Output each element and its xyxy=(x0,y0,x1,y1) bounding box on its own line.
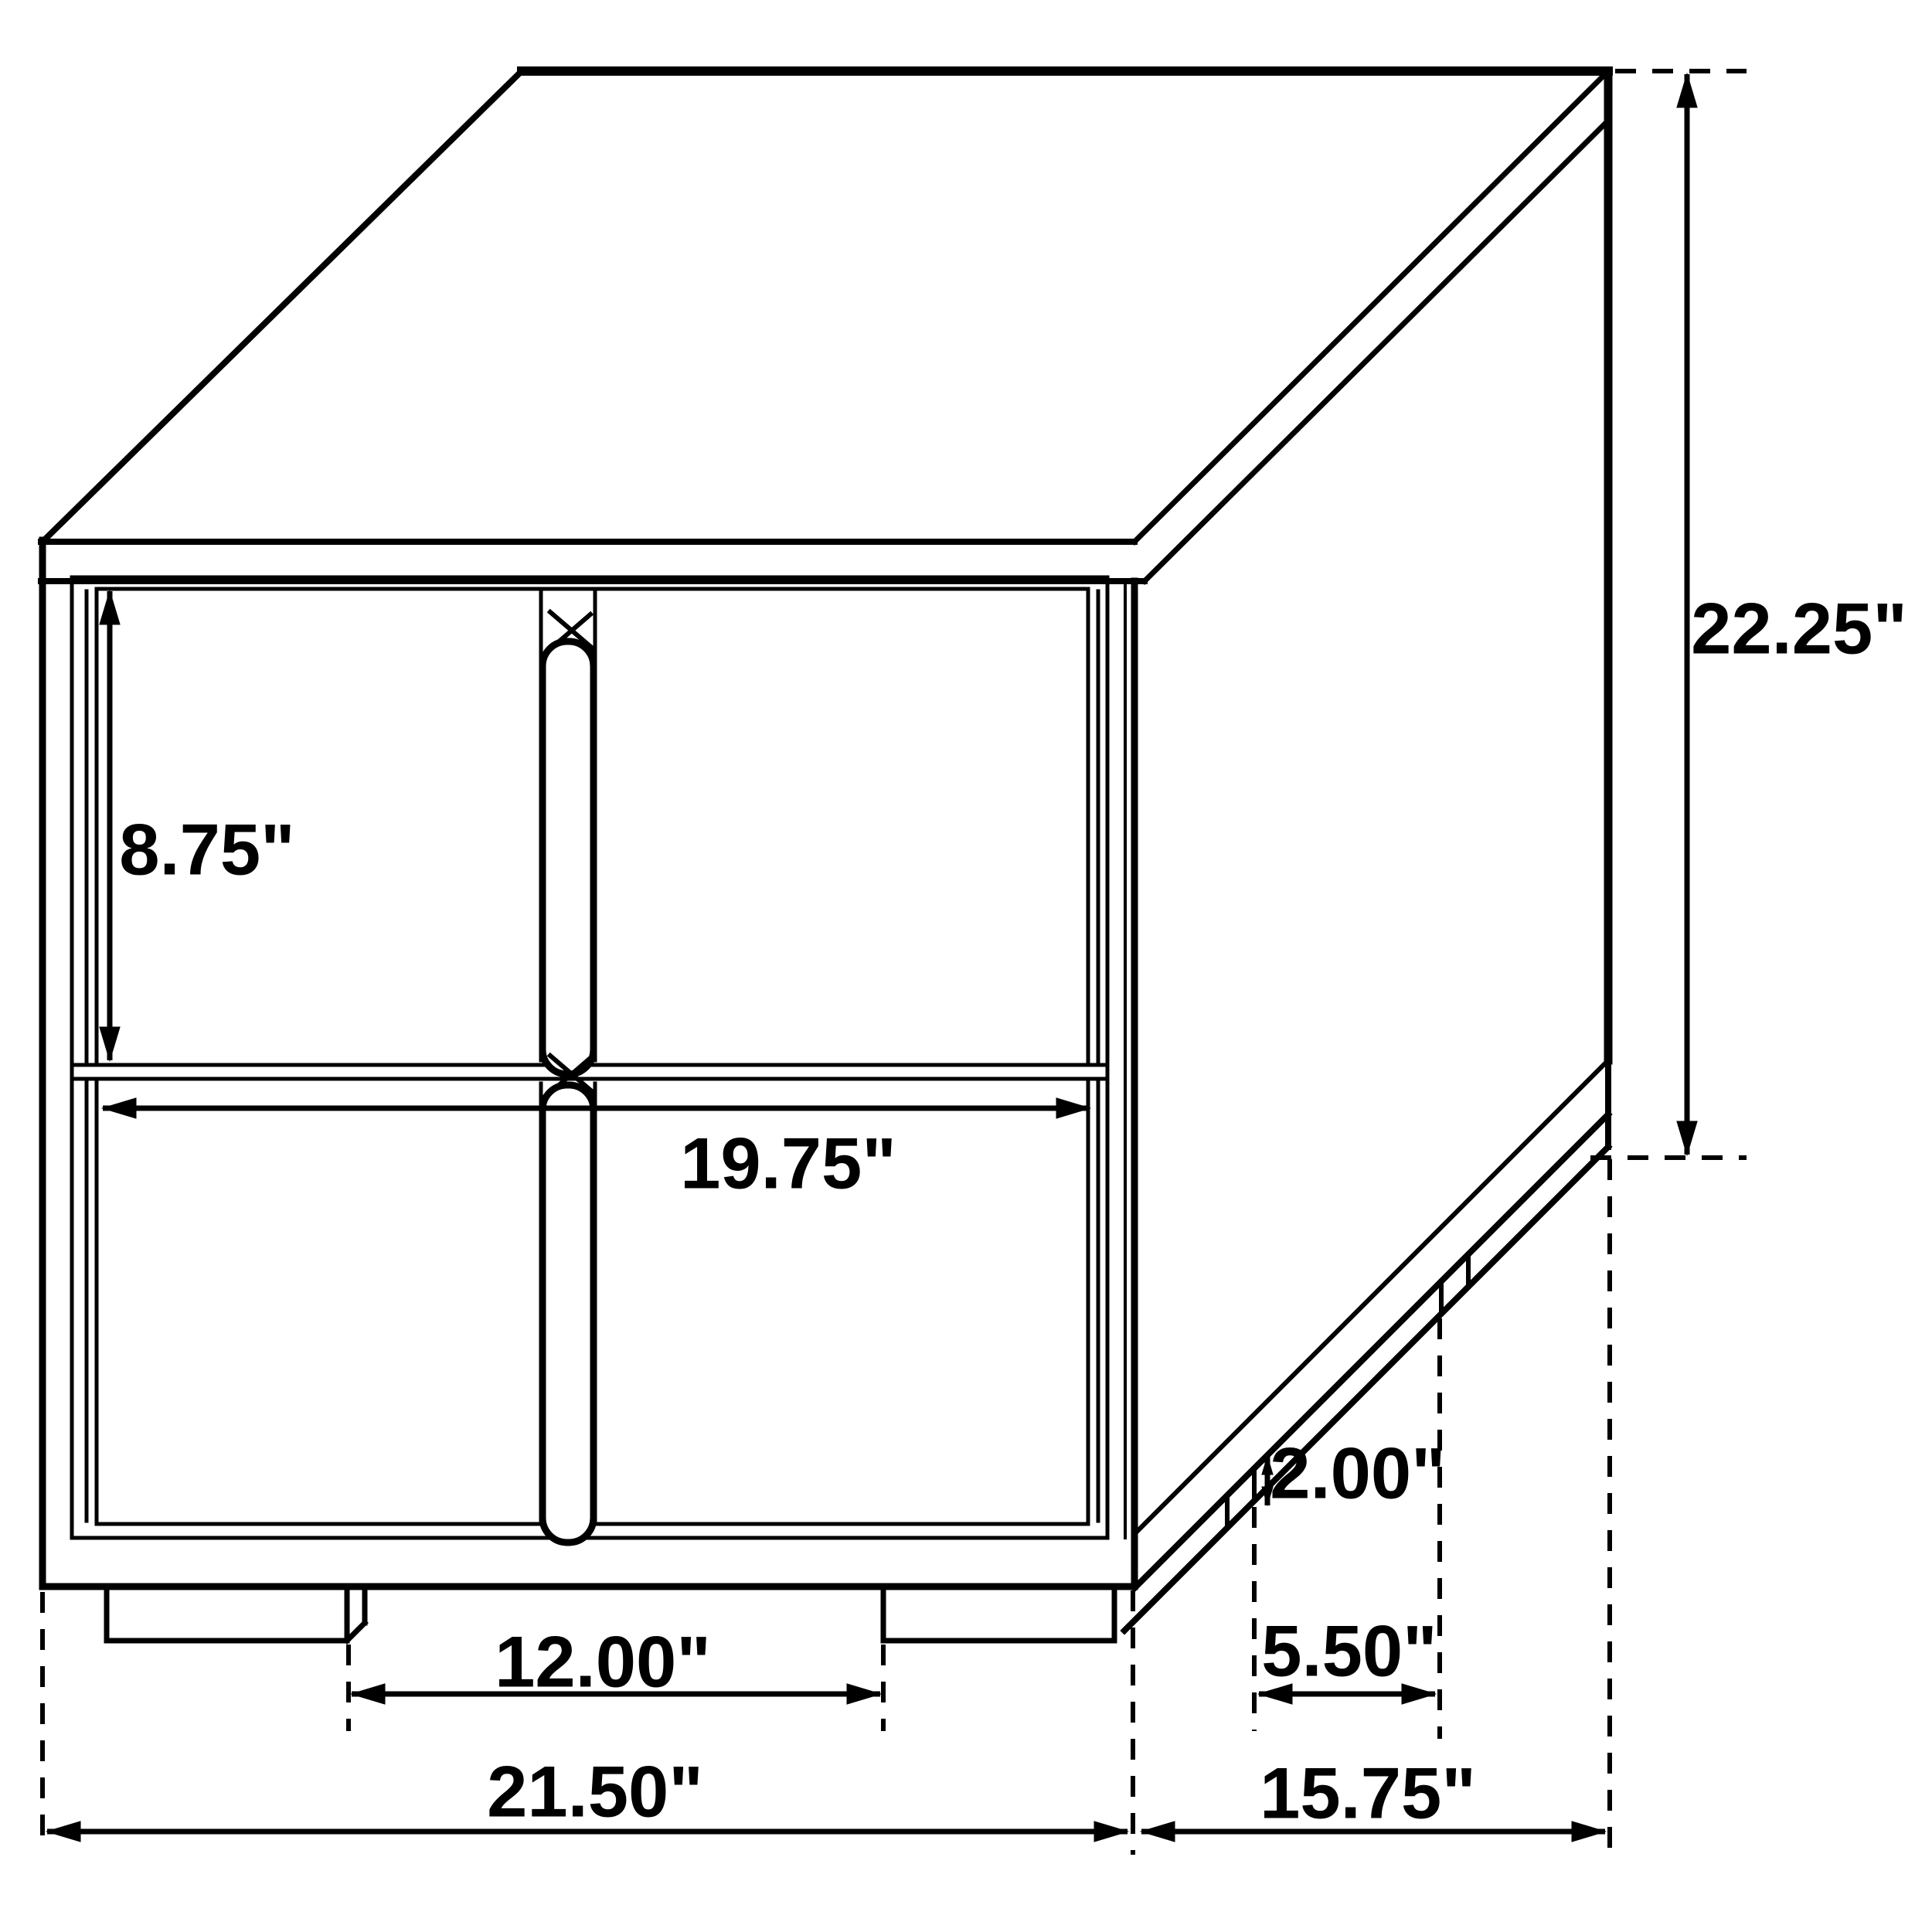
top-band-side-edge xyxy=(1145,121,1608,581)
top-panel xyxy=(41,71,1608,581)
overall-width-label: 21.50" xyxy=(487,1751,703,1832)
lower-drawer-left-edge xyxy=(87,1082,97,1524)
lower-drawer-right-edge xyxy=(1088,1082,1098,1524)
overall-height-label: 22.25" xyxy=(1691,588,1907,669)
overall-depth-label: 15.75" xyxy=(1260,1753,1476,1834)
side-foot-gap-label: 5.50" xyxy=(1261,1611,1437,1692)
side-base-rail-bottom-edge xyxy=(1124,1147,1608,1631)
front-foot-gap-label: 12.00" xyxy=(495,1621,711,1702)
furniture-dimension-diagram: 8.75" 19.75" 22.25" 2.00" 5.50" xyxy=(0,0,1932,1932)
dimension-front-foot-gap: 12.00" xyxy=(349,1621,883,1732)
upper-drawer-handle xyxy=(543,641,594,1074)
dimension-base-height: 2.00" xyxy=(1267,1433,1446,1514)
drawer-height-label: 8.75" xyxy=(119,809,295,890)
side-base-rail-top-edge xyxy=(1134,1114,1608,1588)
side-foot-front xyxy=(1227,1468,1254,1528)
lower-drawer-handle xyxy=(543,1085,594,1543)
nightstand-line-drawing: 8.75" 19.75" 22.25" 2.00" 5.50" xyxy=(0,0,1932,1932)
dimension-side-foot-gap: 5.50" xyxy=(1254,1318,1440,1739)
top-left-diagonal-edge xyxy=(44,71,522,540)
front-right-foot xyxy=(883,1587,1114,1641)
side-foot-back xyxy=(1441,1254,1468,1314)
front-left-foot xyxy=(107,1587,365,1641)
dimension-drawer-height: 8.75" xyxy=(110,591,295,1060)
top-right-diagonal-edge xyxy=(1134,71,1608,542)
upper-drawer-left-edge xyxy=(87,591,97,1063)
base-height-label: 2.00" xyxy=(1270,1433,1446,1514)
front-width-label: 19.75" xyxy=(680,1123,896,1204)
dimension-overall-height: 22.25" xyxy=(1590,71,1907,1158)
side-panel xyxy=(1134,71,1608,1587)
upper-drawer-right-edge xyxy=(1088,591,1098,1063)
